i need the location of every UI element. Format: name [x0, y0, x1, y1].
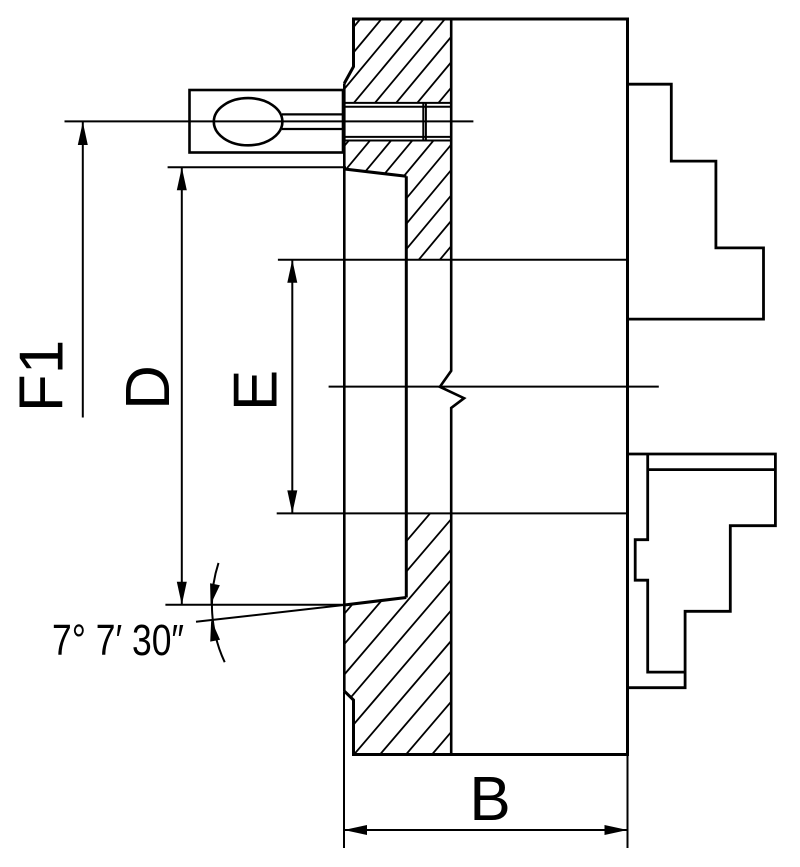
- svg-text:F1: F1: [8, 340, 77, 412]
- svg-text:E: E: [222, 370, 291, 411]
- svg-text:D: D: [114, 365, 183, 410]
- svg-text:B: B: [469, 765, 510, 834]
- svg-text:7° 7′ 30″: 7° 7′ 30″: [52, 616, 184, 665]
